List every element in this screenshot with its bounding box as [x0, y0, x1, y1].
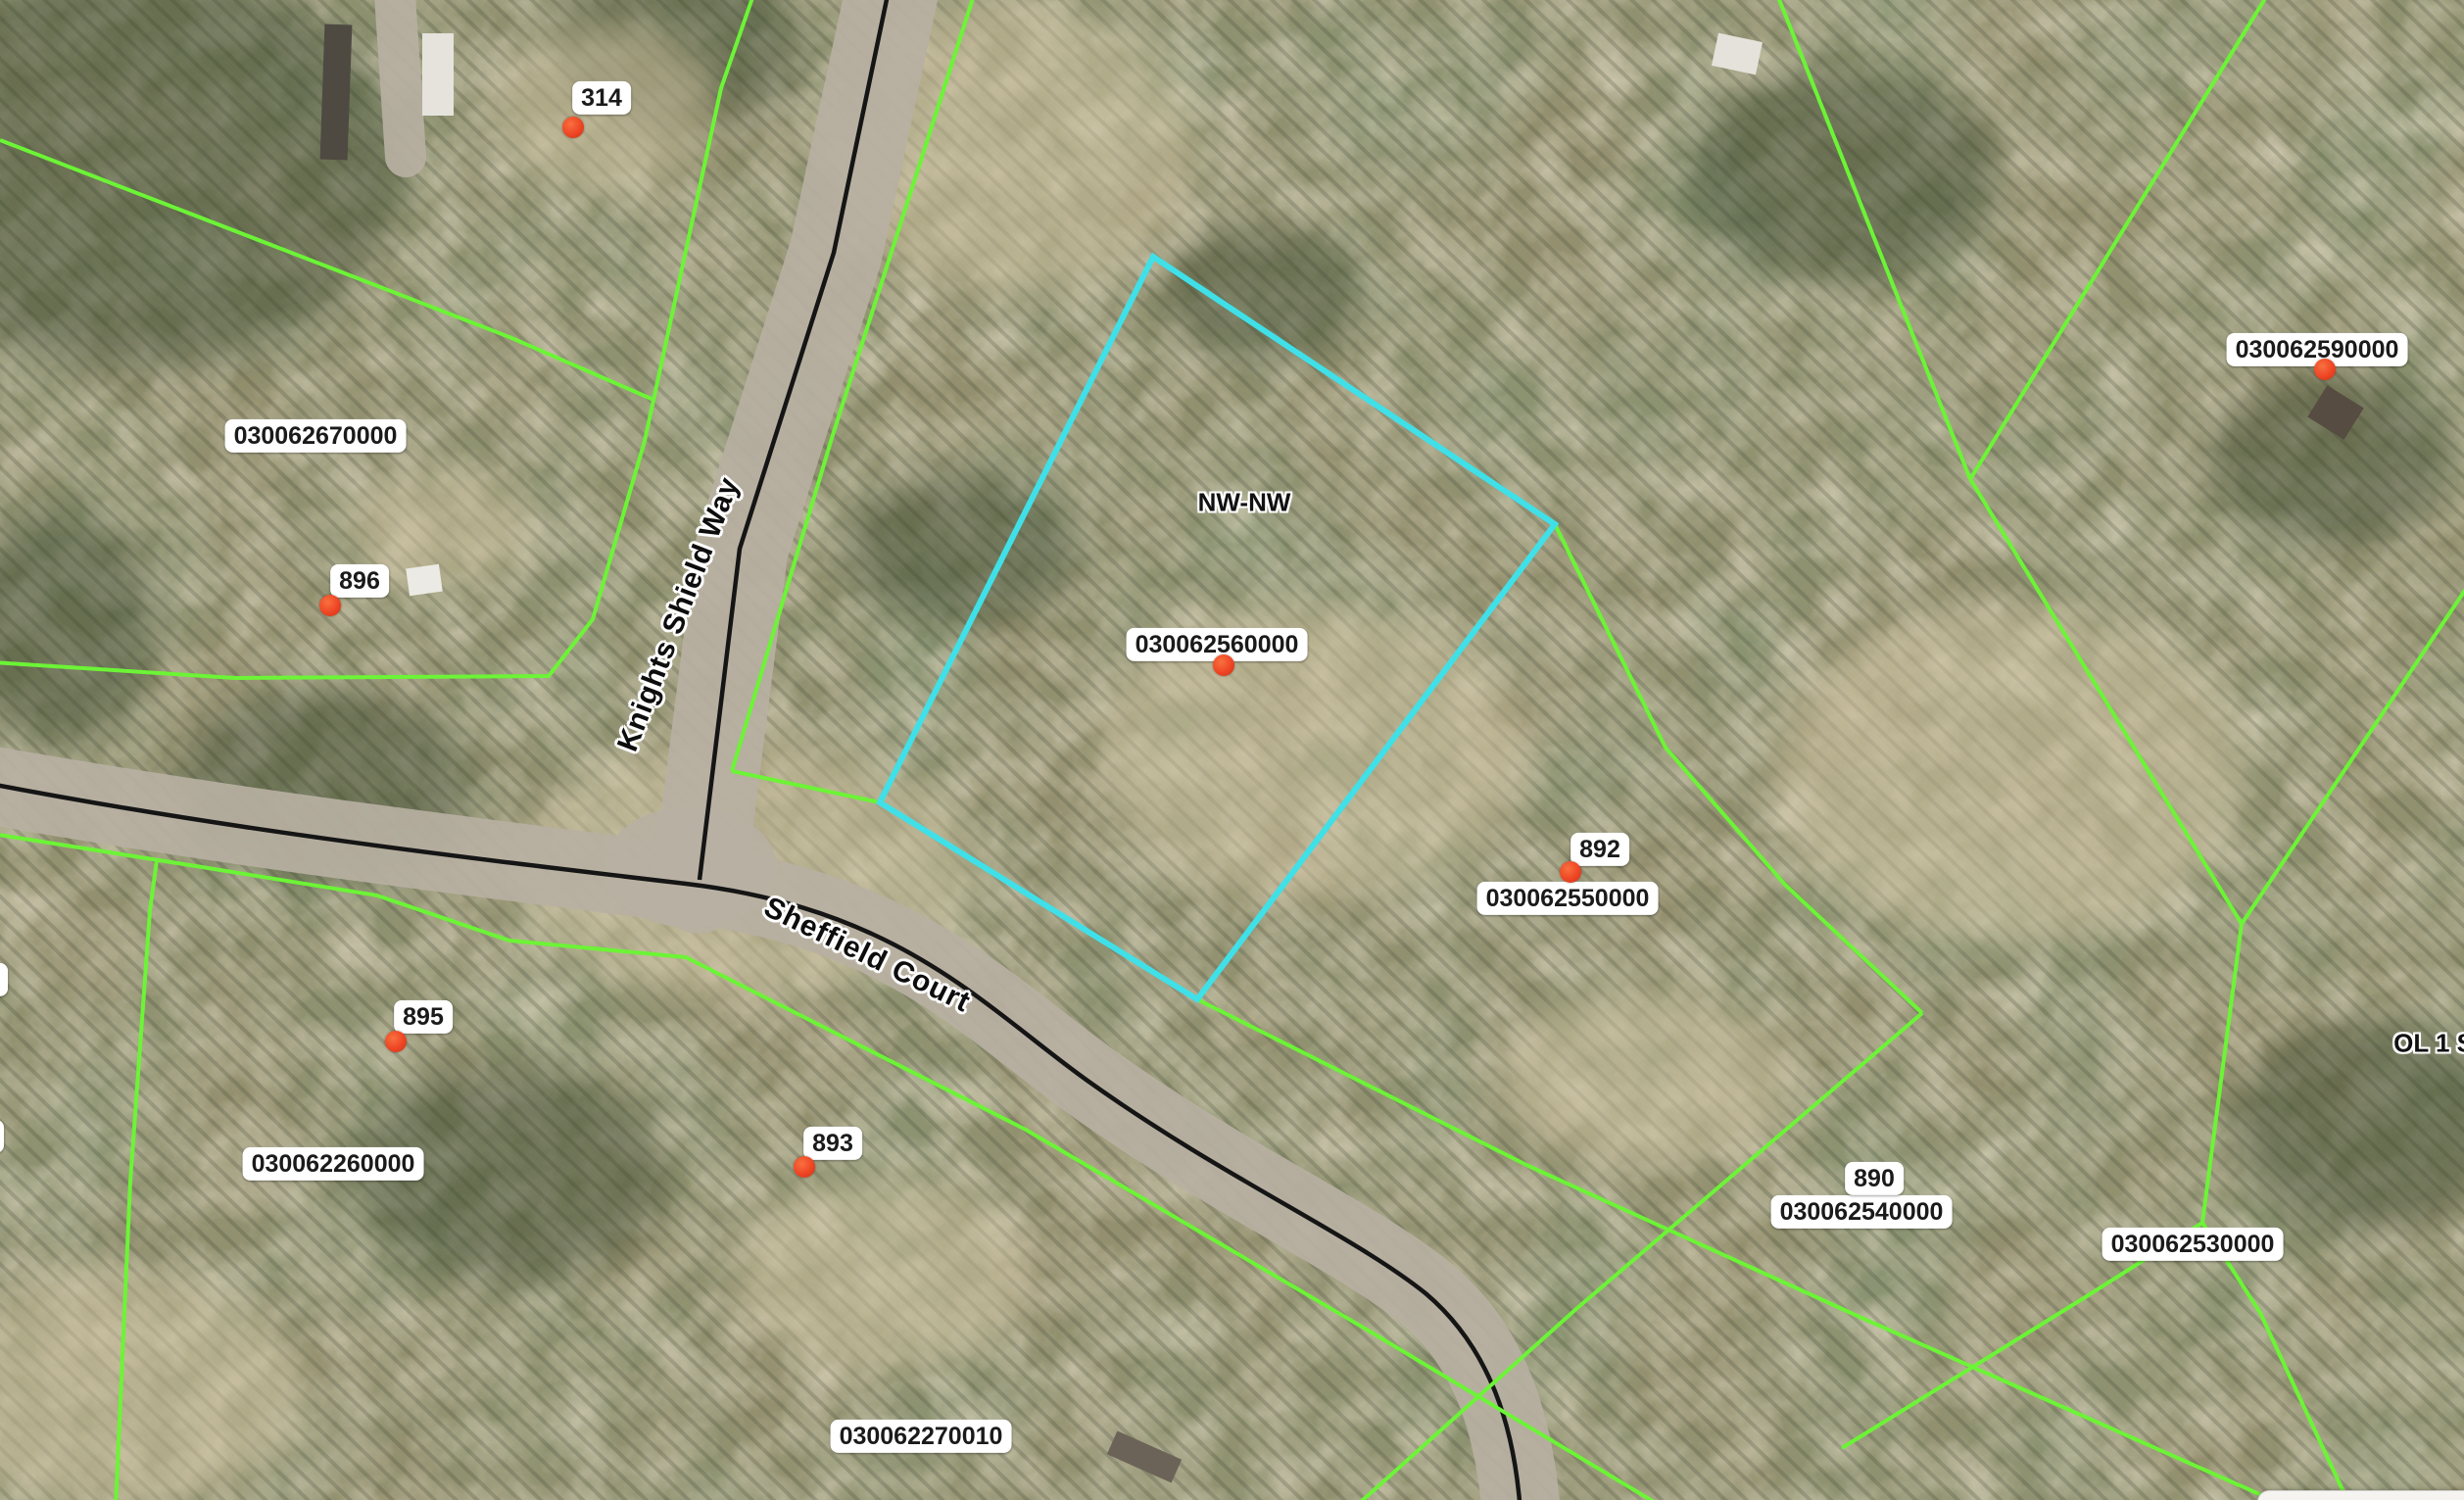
- address-point-dot[interactable]: [2314, 359, 2336, 380]
- address-point-dot[interactable]: [794, 1156, 815, 1178]
- address-point-label[interactable]: 890: [1845, 1162, 1904, 1195]
- attribution-bar: A A i t: [2257, 1490, 2464, 1500]
- address-point-dot[interactable]: [1560, 861, 1581, 883]
- address-point-label[interactable]: 893: [803, 1127, 862, 1160]
- parcel-map-canvas[interactable]: 0300626700000300625600000300625900000300…: [0, 0, 2464, 1500]
- parcel-id-label[interactable]: 030062540000: [1771, 1195, 1953, 1229]
- address-point-label[interactable]: 314: [572, 81, 631, 115]
- address-point-dot[interactable]: [562, 117, 584, 138]
- road-name-label: Sheffield Court: [758, 891, 976, 1019]
- parcel-id-label[interactable]: 030062530000: [2102, 1228, 2284, 1261]
- outlot-label: OL 1 Sh: [2393, 1029, 2464, 1059]
- address-point-dot[interactable]: [319, 595, 341, 616]
- parcel-id-label[interactable]: 030062270010: [831, 1420, 1012, 1453]
- parcel-id-label[interactable]: 030062260000: [243, 1147, 424, 1181]
- parcel-id-label[interactable]: 030062550000: [1477, 882, 1659, 915]
- partial-parcel-label[interactable]: 0: [0, 1120, 4, 1153]
- address-point-label[interactable]: 896: [330, 564, 389, 598]
- address-point-dot[interactable]: [385, 1031, 407, 1052]
- address-point-dot[interactable]: [1213, 654, 1234, 676]
- plss-section-label: NW-NW: [1198, 488, 1291, 518]
- address-point-label[interactable]: 892: [1570, 833, 1629, 866]
- partial-parcel-label[interactable]: 7: [0, 963, 8, 996]
- address-point-label[interactable]: 895: [394, 1000, 453, 1034]
- map-label-layer: 0300626700000300625600000300625900000300…: [0, 0, 2464, 1500]
- parcel-id-label[interactable]: 030062670000: [225, 419, 407, 453]
- road-name-label: Knights Shield Way: [611, 472, 747, 755]
